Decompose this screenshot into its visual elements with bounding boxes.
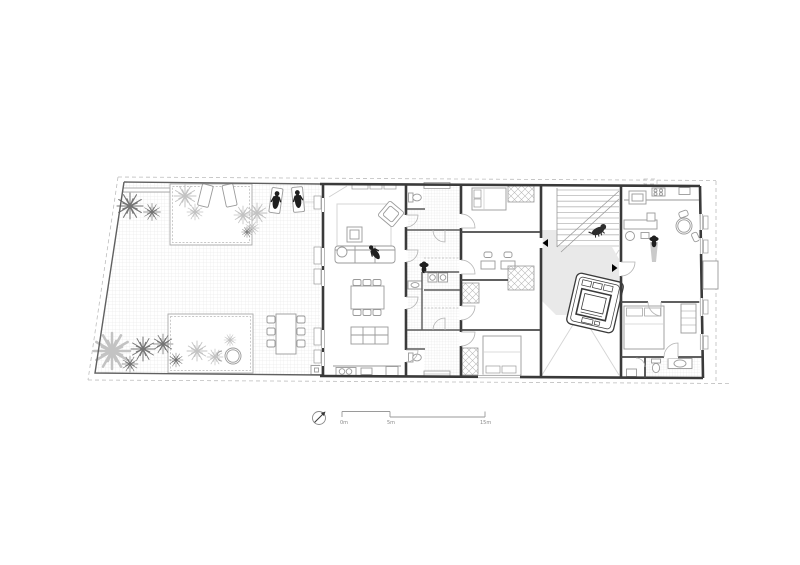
side-table	[647, 213, 655, 221]
sofa-second	[351, 327, 388, 344]
toilet	[652, 359, 661, 373]
bathroom-sink	[408, 281, 422, 289]
scale-bar: 0m 5m 15m	[340, 412, 491, 427]
end-apartment	[624, 188, 700, 379]
scale-label-5: 5m	[387, 420, 395, 426]
stove	[361, 368, 372, 375]
courtyard-entry-box	[311, 366, 322, 375]
closet	[462, 283, 479, 303]
bed-large	[483, 336, 521, 375]
stool	[626, 232, 635, 241]
desk	[481, 261, 495, 269]
toilet	[409, 193, 422, 202]
dining-set	[351, 280, 384, 316]
wc-fixture	[627, 369, 637, 377]
cafe-table-set	[676, 210, 700, 243]
scale-label-15: 15m	[480, 420, 491, 426]
stair-hall	[542, 188, 624, 375]
living-unit	[329, 184, 404, 376]
planter-top	[170, 183, 252, 245]
kitchen-appliance	[386, 367, 398, 376]
staircase	[557, 188, 619, 252]
dining-table	[351, 286, 384, 309]
bed	[472, 188, 506, 210]
kitchen	[333, 366, 401, 376]
bay-window	[703, 261, 718, 289]
coffee-table	[347, 227, 362, 242]
dog	[588, 224, 608, 240]
side-table	[337, 247, 347, 257]
north-arrow	[313, 412, 326, 425]
round-table	[676, 218, 692, 234]
bathroom-sink	[668, 359, 692, 369]
armchair	[378, 201, 405, 228]
closet	[508, 186, 534, 202]
kitchen-sink-unit	[629, 191, 646, 204]
closet	[508, 266, 534, 290]
scale-label-0: 0m	[340, 420, 348, 426]
courtyard-terrace	[94, 182, 322, 375]
closet-shelves	[681, 304, 696, 333]
garden-table	[225, 348, 241, 364]
stove	[652, 188, 665, 196]
outdoor-table	[276, 314, 296, 354]
floor-plan-canvas: 0m 5m 15m	[0, 0, 800, 565]
sofa	[335, 246, 395, 263]
low-garden-wall	[123, 188, 170, 192]
closet	[462, 348, 478, 375]
bed-apartment	[624, 306, 664, 349]
planter-bottom	[168, 314, 253, 373]
kitchen-appliance	[679, 188, 690, 195]
floor-plan-page: 0m 5m 15m	[0, 0, 800, 565]
